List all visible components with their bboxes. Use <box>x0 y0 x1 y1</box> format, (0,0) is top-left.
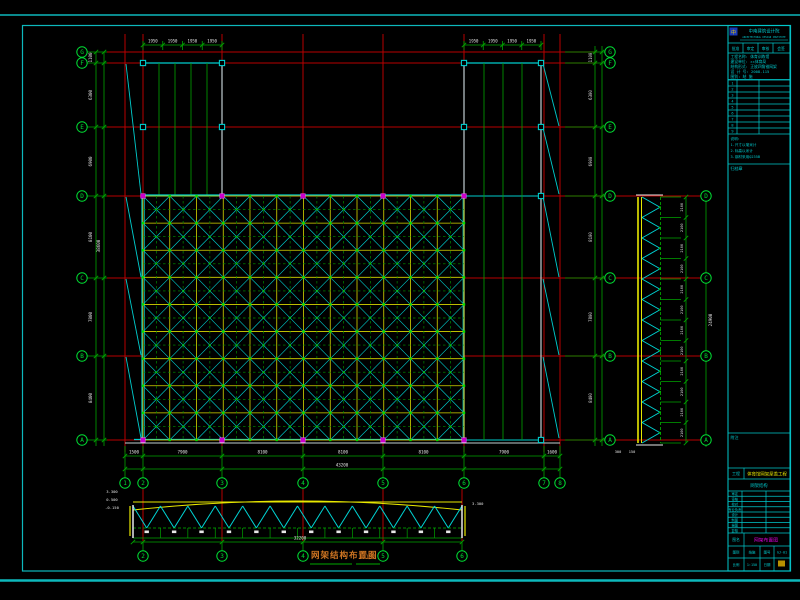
svg-text:G: G <box>80 49 84 56</box>
svg-text:43200: 43200 <box>336 463 349 468</box>
svg-text:1500: 1500 <box>129 450 140 455</box>
space-frame <box>142 195 465 441</box>
svg-text:1950: 1950 <box>207 39 217 44</box>
svg-text:8100: 8100 <box>588 232 593 242</box>
svg-text:6300: 6300 <box>88 89 93 100</box>
svg-text:专业负责: 专业负责 <box>728 507 742 512</box>
svg-text:制图: 制图 <box>732 517 739 522</box>
title-block: 中中南建筑设计院ARCHITECTURAL DESIGN INSTITUTE批准… <box>728 26 790 572</box>
svg-text:2: 2 <box>731 88 733 92</box>
svg-text:网架结构: 网架结构 <box>750 482 768 489</box>
svg-text:图号: 图号 <box>764 550 771 555</box>
svg-text:1.尺寸以毫米计: 1.尺寸以毫米计 <box>731 142 757 147</box>
svg-text:7900: 7900 <box>177 450 188 455</box>
svg-text:C: C <box>608 275 612 282</box>
svg-text:24900: 24900 <box>708 313 713 326</box>
svg-text:中南建筑设计院: 中南建筑设计院 <box>749 28 780 35</box>
svg-text:F: F <box>80 60 84 67</box>
svg-text:D: D <box>608 193 612 200</box>
svg-text:审定: 审定 <box>747 46 755 51</box>
svg-text:体育馆网架屋盖工程: 体育馆网架屋盖工程 <box>747 471 787 478</box>
svg-text:8: 8 <box>558 480 562 487</box>
svg-text:3.钢材采用Q235B: 3.钢材采用Q235B <box>731 154 761 159</box>
svg-text:150: 150 <box>629 450 636 454</box>
svg-text:6: 6 <box>462 480 466 487</box>
svg-text:3.300: 3.300 <box>472 501 484 506</box>
svg-text:3.300: 3.300 <box>106 489 118 494</box>
svg-text:附注: 附注 <box>731 434 739 440</box>
svg-text:A: A <box>608 437 612 444</box>
svg-text:7800: 7800 <box>88 311 93 322</box>
svg-text:8400: 8400 <box>88 392 93 403</box>
svg-text:2: 2 <box>141 480 145 487</box>
svg-text:B: B <box>608 353 612 360</box>
sheet-frame <box>0 15 800 581</box>
svg-text:1950: 1950 <box>507 39 517 44</box>
svg-text:审核: 审核 <box>732 496 739 501</box>
svg-text:B: B <box>80 353 84 360</box>
svg-text:2: 2 <box>141 553 145 560</box>
svg-text:8100: 8100 <box>88 231 93 242</box>
svg-text:GJ-01: GJ-01 <box>777 551 787 555</box>
svg-text:4: 4 <box>301 553 305 560</box>
svg-text:4: 4 <box>301 480 305 487</box>
svg-text:38600: 38600 <box>96 239 101 252</box>
svg-text:C: C <box>704 275 708 282</box>
svg-text:6300: 6300 <box>588 90 593 100</box>
svg-text:5: 5 <box>731 106 733 110</box>
svg-text:1:150: 1:150 <box>747 563 757 567</box>
svg-text:32200: 32200 <box>294 536 307 541</box>
svg-text:D: D <box>704 193 708 200</box>
svg-text:图名: 图名 <box>732 537 740 542</box>
svg-text:4: 4 <box>731 100 733 104</box>
svg-text:2100: 2100 <box>680 264 684 273</box>
svg-text:校对: 校对 <box>732 502 739 507</box>
svg-text:审定: 审定 <box>732 491 739 496</box>
svg-text:审核: 审核 <box>762 46 770 51</box>
svg-text:7900: 7900 <box>499 450 510 455</box>
svg-text:F: F <box>608 60 612 67</box>
svg-text:3: 3 <box>731 94 733 98</box>
svg-text:-0.150: -0.150 <box>105 505 119 510</box>
svg-text:归档章: 归档章 <box>731 165 743 171</box>
svg-text:2100: 2100 <box>680 305 684 314</box>
svg-text:批准: 批准 <box>732 46 740 51</box>
svg-text:5: 5 <box>381 553 385 560</box>
svg-text:1950: 1950 <box>168 39 178 44</box>
svg-text:2100: 2100 <box>680 285 684 294</box>
svg-text:说明:: 说明: <box>731 136 740 141</box>
svg-text:6900: 6900 <box>588 156 593 166</box>
svg-text:6900: 6900 <box>88 156 93 167</box>
svg-text:E: E <box>80 124 84 131</box>
svg-text:1100: 1100 <box>88 52 93 63</box>
axis-bubbles: AABBCCDDEEFFGGDCBA1234567823456 <box>77 47 711 561</box>
svg-text:8400: 8400 <box>588 393 593 403</box>
svg-text:5: 5 <box>381 480 385 487</box>
svg-text:2100: 2100 <box>680 408 684 417</box>
support-markers <box>140 60 543 442</box>
svg-text:结施: 结施 <box>749 550 756 555</box>
svg-text:2100: 2100 <box>680 223 684 232</box>
drawing-scale: 1:150 <box>358 555 376 561</box>
svg-text:2100: 2100 <box>680 203 684 212</box>
svg-text:1: 1 <box>731 82 733 86</box>
svg-text:3: 3 <box>220 480 224 487</box>
svg-text:D: D <box>80 193 84 200</box>
svg-text:图别: 结 施: 图别: 结 施 <box>731 74 753 79</box>
svg-text:1600: 1600 <box>547 450 558 455</box>
svg-text:设计: 设计 <box>732 512 739 517</box>
svg-text:B: B <box>704 353 708 360</box>
svg-text:8100: 8100 <box>338 450 349 455</box>
svg-text:7800: 7800 <box>588 312 593 322</box>
svg-text:G: G <box>608 49 612 56</box>
svg-text:日期: 日期 <box>764 562 771 567</box>
svg-text:1: 1 <box>123 480 127 487</box>
svg-text:1950: 1950 <box>148 39 158 44</box>
svg-text:9: 9 <box>731 130 733 134</box>
svg-text:2100: 2100 <box>680 346 684 355</box>
cad-canvas[interactable]: 1100630069008100780084003860015007900810… <box>0 0 800 600</box>
svg-text:6: 6 <box>731 112 733 116</box>
svg-text:网架布置图: 网架布置图 <box>754 537 778 544</box>
truss-elevation-bottom: 3.3000.500-0.1503.30032200 <box>105 489 484 564</box>
svg-text:2.标高以米计: 2.标高以米计 <box>731 148 754 153</box>
svg-text:比例: 比例 <box>733 562 740 567</box>
svg-text:2100: 2100 <box>680 428 684 437</box>
svg-text:1100: 1100 <box>588 52 593 62</box>
svg-text:2100: 2100 <box>680 387 684 396</box>
svg-text:8100: 8100 <box>418 450 429 455</box>
svg-text:1950: 1950 <box>488 39 498 44</box>
svg-text:2100: 2100 <box>680 244 684 253</box>
svg-text:工程: 工程 <box>732 470 740 476</box>
svg-text:2100: 2100 <box>680 367 684 376</box>
svg-text:会签: 会签 <box>777 46 785 51</box>
svg-text:A: A <box>704 437 708 444</box>
svg-text:7: 7 <box>542 480 546 487</box>
svg-text:A: A <box>80 437 84 444</box>
svg-text:1950: 1950 <box>469 39 479 44</box>
svg-text:描图: 描图 <box>732 523 739 528</box>
svg-text:300: 300 <box>615 450 622 454</box>
svg-text:8100: 8100 <box>257 450 268 455</box>
svg-text:C: C <box>80 275 84 282</box>
svg-text:复核: 复核 <box>732 528 739 533</box>
svg-text:E: E <box>608 124 612 131</box>
svg-text:7: 7 <box>731 118 733 122</box>
svg-text:2100: 2100 <box>680 326 684 335</box>
dimension-chains: 1100630069008100780084003860015007900810… <box>87 39 605 478</box>
svg-text:ARCHITECTURAL DESIGN INSTITUTE: ARCHITECTURAL DESIGN INSTITUTE <box>742 36 786 39</box>
svg-text:6: 6 <box>460 553 464 560</box>
svg-text:1950: 1950 <box>188 39 198 44</box>
svg-text:8: 8 <box>731 124 733 128</box>
svg-text:3: 3 <box>220 553 224 560</box>
svg-text:图别: 图别 <box>733 550 740 555</box>
svg-text:0.500: 0.500 <box>106 497 118 502</box>
cad-drawing-svg: 1100630069008100780084003860015007900810… <box>0 0 800 600</box>
svg-text:中: 中 <box>731 29 736 36</box>
truss-elevation-right: 2100210021002100210021002100210021002100… <box>615 194 713 454</box>
svg-text:1950: 1950 <box>527 39 537 44</box>
